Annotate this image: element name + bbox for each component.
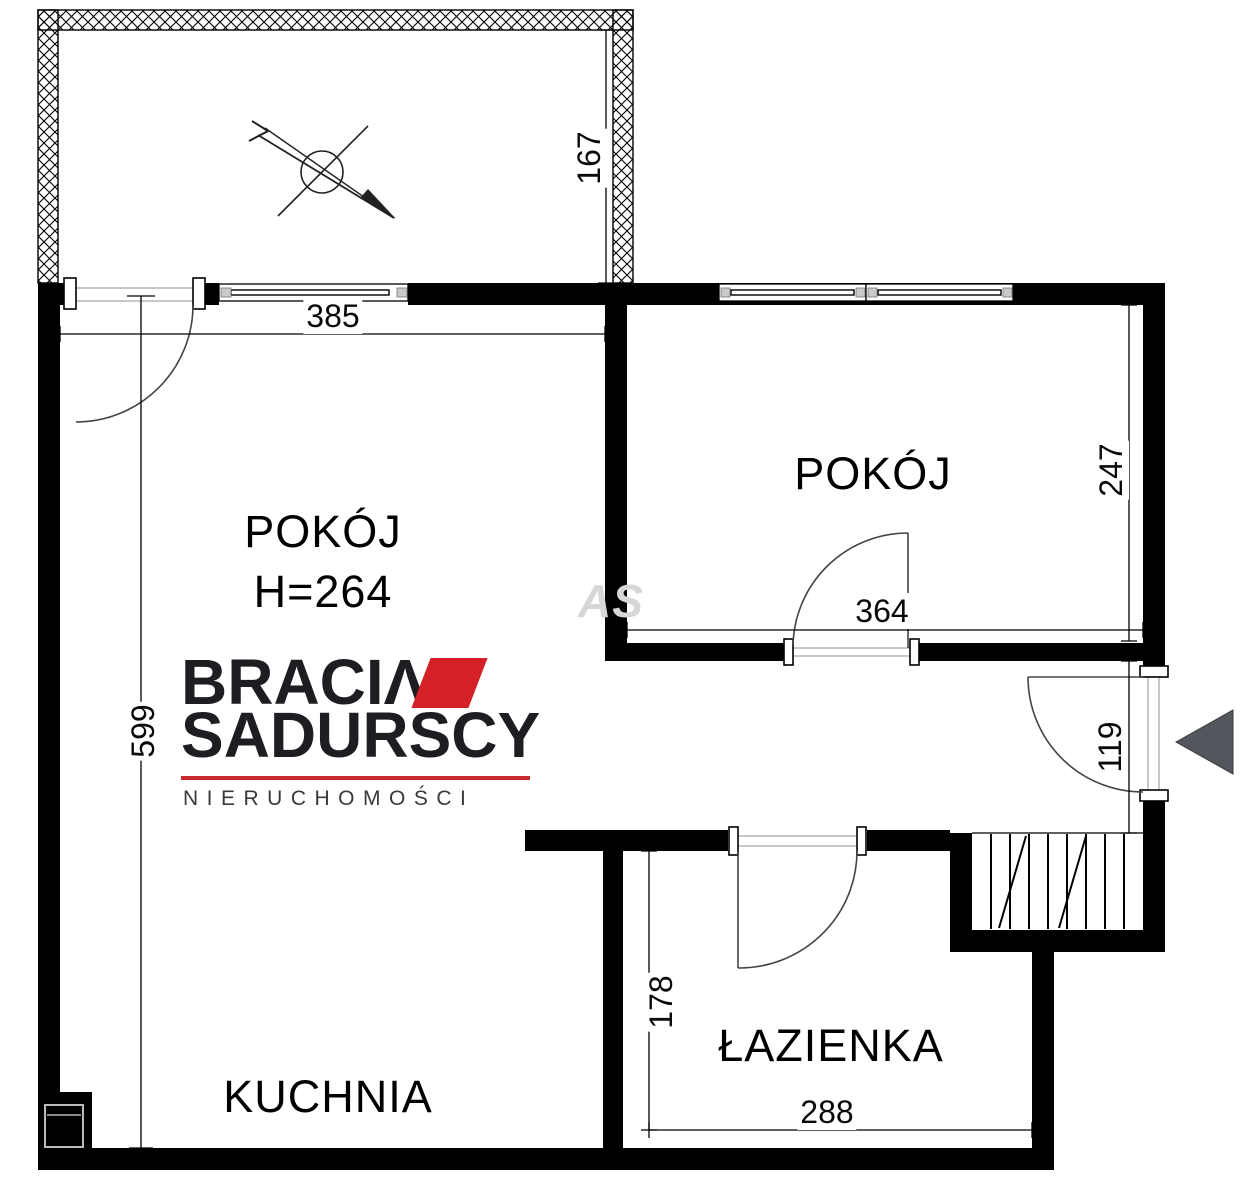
watermark-text: AS xyxy=(578,574,644,628)
floor-plan: POKÓJ H=264 POKÓJ KUCHNIA ŁAZIENKA 167 3… xyxy=(0,0,1259,1200)
dim-main-window-width: 385 xyxy=(303,298,362,334)
staircase xyxy=(972,833,1143,929)
logo-tagline: NIERUCHOMOŚCI xyxy=(183,787,474,811)
dim-right-room-depth: 247 xyxy=(1093,440,1129,499)
logo-divider-rule xyxy=(181,776,530,780)
dim-balcony-depth: 167 xyxy=(571,128,607,187)
room-height-label: H=264 xyxy=(254,566,393,618)
dim-main-room-length: 599 xyxy=(125,701,161,760)
kitchen-shaft xyxy=(45,1105,83,1147)
balcony-walls xyxy=(38,10,633,283)
room-label-kitchen: KUCHNIA xyxy=(223,1071,433,1123)
entrance-arrow-icon xyxy=(1176,710,1233,774)
bathroom-door-arc xyxy=(738,851,857,968)
room-label-bathroom: ŁAZIENKA xyxy=(718,1020,944,1072)
right-room-door-arc xyxy=(793,533,908,648)
north-arrow-icon xyxy=(249,121,396,219)
agency-logo: BRACIΛ SADURSCY NIERUCHOMOŚCI xyxy=(181,656,541,816)
right-room-window xyxy=(719,284,1013,301)
room-label-right: POKÓJ xyxy=(794,448,952,500)
dim-right-room-width: 364 xyxy=(852,593,911,629)
balcony-door-arc xyxy=(76,305,193,422)
logo-brand-line2: SADURSCY xyxy=(181,703,540,767)
dim-bath-depth: 178 xyxy=(643,972,679,1031)
room-label-main: POKÓJ xyxy=(244,506,402,558)
dim-bath-width: 288 xyxy=(797,1094,856,1130)
dim-entry-width: 119 xyxy=(1092,718,1128,775)
